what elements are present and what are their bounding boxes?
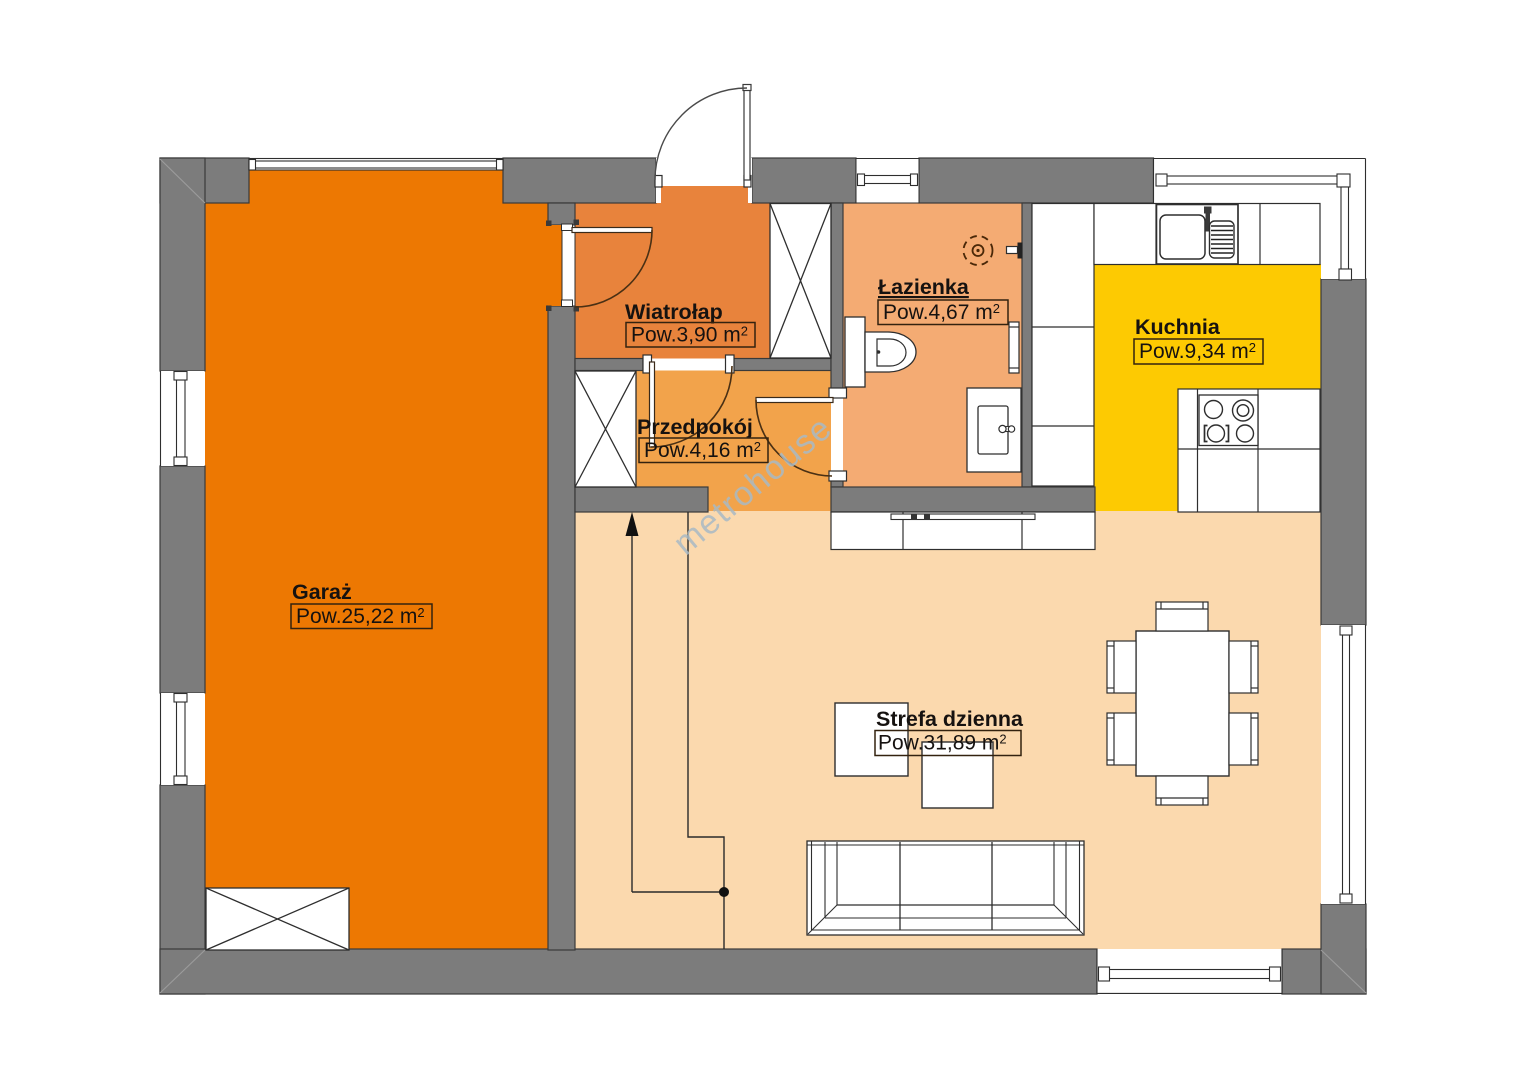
svg-text:Pow.4,67 m2: Pow.4,67 m2 (883, 301, 1000, 324)
svg-text:Strefa dzienna: Strefa dzienna (876, 707, 1024, 731)
svg-text:Przedpokój: Przedpokój (637, 415, 753, 439)
svg-text:Pow.9,34 m2: Pow.9,34 m2 (1139, 340, 1256, 363)
svg-text:Wiatrołap: Wiatrołap (625, 300, 723, 324)
svg-text:Łazienka: Łazienka (878, 275, 970, 299)
svg-text:Kuchnia: Kuchnia (1135, 315, 1221, 339)
svg-text:Garaż: Garaż (292, 580, 352, 604)
svg-text:Pow.25,22 m2: Pow.25,22 m2 (296, 605, 425, 628)
svg-text:Pow.3,90 m2: Pow.3,90 m2 (631, 324, 748, 347)
svg-text:Pow.31,89 m2: Pow.31,89 m2 (878, 732, 1007, 755)
svg-text:Pow.4,16 m2: Pow.4,16 m2 (644, 439, 761, 462)
